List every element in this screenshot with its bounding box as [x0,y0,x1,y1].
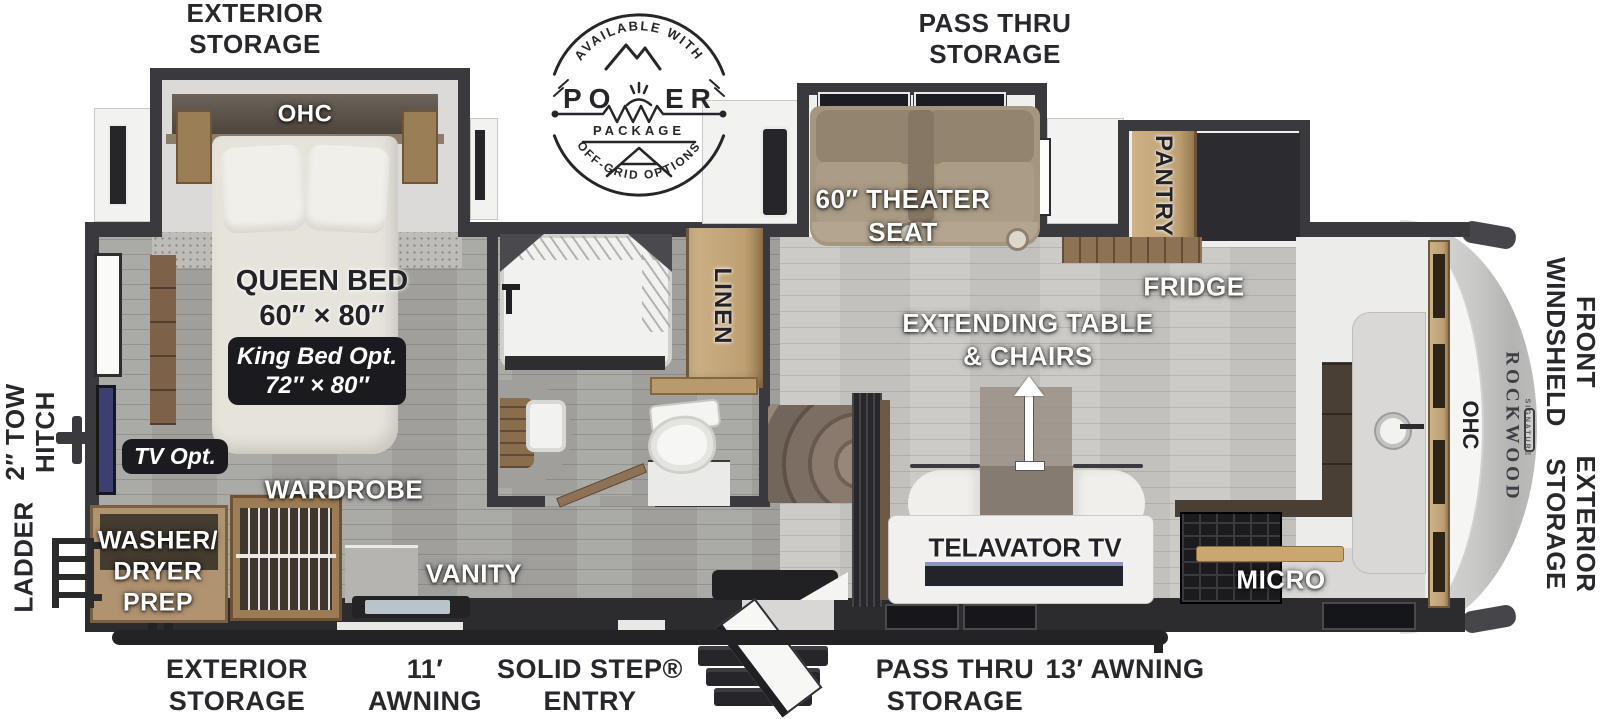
extend-arrow-base [1015,461,1045,471]
package-word: PACKAGE [593,123,685,138]
badge-arc-bottom-text: OFF-GRID OPTIONS [574,139,703,183]
linen-step [650,377,758,395]
label-queen-bed: QUEEN BED 60″ × 80″ [236,264,408,334]
vanity-cabinet [345,545,418,603]
front-ohc-slot [1433,344,1445,408]
label-exterior-storage-bottom: EXTERIOR STORAGE [132,653,342,717]
rv-floorplan: AVAILABLE WITH PO ER PACKAGE OFF-GRID OP… [0,0,1600,719]
nightstand [176,110,212,184]
brand-series: SIGNATURE [1512,399,1543,458]
shower-head-icon [502,284,520,290]
cutting-board [1196,546,1344,562]
mountain-icon [606,45,660,69]
label-ohc-bed: OHC [278,98,333,131]
tv-bedroom [96,385,116,495]
label-tow-hitch: 2″ TOW HITCH [0,383,60,480]
theater-seat-back [926,110,1034,164]
rail-bracket [1154,644,1163,653]
faucet-icon [1400,424,1424,429]
rail-bracket [164,623,173,632]
label-exterior-storage-top: EXTERIOR STORAGE [150,0,360,60]
label-pantry: PANTRY [1149,135,1177,237]
front-ohc-slot [1433,440,1445,504]
label-wardrobe: WARDROBE [265,474,424,507]
label-ladder: LADDER [9,501,40,612]
power-package-badge: AVAILABLE WITH PO ER PACKAGE OFF-GRID OP… [543,8,735,200]
bedroom-steps [768,405,860,503]
window [885,604,959,630]
wall-top-3 [1035,222,1127,237]
rail-bracket [148,623,157,632]
label-micro: MICRO [1236,564,1325,597]
sink-icon [1376,414,1410,448]
slide-wing-wall [1047,118,1124,224]
label-vanity: VANITY [426,558,522,591]
chair-rail [910,464,980,468]
front-ohc-slot [1433,254,1445,318]
window [760,126,790,218]
shower-threshold [505,356,665,370]
extend-arrow-head [1014,376,1044,396]
pillow [304,144,390,234]
label-solid-step: SOLID STEP® ENTRY [478,653,702,717]
label-extending-table: EXTENDING TABLE & CHAIRS [902,307,1153,373]
window [108,124,128,206]
label-theater-seat: 60″ THEATER SEAT [816,183,991,249]
power-word-left: PO [563,83,617,114]
cup-holder-icon [1006,228,1029,251]
window [1322,602,1416,630]
pillow [220,144,306,234]
vanity-mirror-glass [365,600,450,614]
label-tv-option: TV Opt. [122,439,228,474]
label-washer-dryer: WASHER/ DRYER PREP [98,526,218,619]
window [475,130,485,200]
label-linen: LINEN [708,268,736,345]
front-cap-corner-bottom [1461,603,1518,634]
chair-rail [1073,464,1143,468]
line-dot [552,111,559,118]
label-king-bed-option: King Bed Opt. 72″ × 80″ [228,337,406,405]
telavator-tv [925,562,1123,586]
window [963,604,1037,630]
wall-top-4 [1299,222,1470,237]
tow-hitch-icon [56,432,90,444]
front-ohc-slot [1433,532,1445,592]
nightstand [402,110,438,184]
wardrobe-interior [240,508,332,610]
label-fridge: FRIDGE [1143,271,1244,304]
line-dot [720,111,727,118]
label-awning-13: 13′ AWNING [1010,653,1240,685]
extend-arrow-shaft [1024,392,1034,466]
awning-rail [112,630,1168,645]
label-front-windshield: FRONT WINDSHIELD [1541,257,1600,427]
ladder-icon [52,538,94,608]
dresser [150,255,176,425]
label-telavator-tv: TELAVATOR TV [928,533,1121,564]
power-word-right: ER [665,83,718,114]
wardrobe-rod [236,554,336,558]
label-pass-thru-top: PASS THRU STORAGE [890,8,1100,70]
window [94,253,122,377]
sun-icon [627,83,651,105]
label-ohc-front: OHC [1457,401,1483,450]
wood-platform [1062,237,1202,263]
label-exterior-storage-right: EXTERIOR STORAGE [1541,456,1600,593]
shower-head-icon [506,286,512,314]
tv-wall [852,393,882,607]
bath-basin [526,400,566,452]
fridge [1197,133,1300,241]
